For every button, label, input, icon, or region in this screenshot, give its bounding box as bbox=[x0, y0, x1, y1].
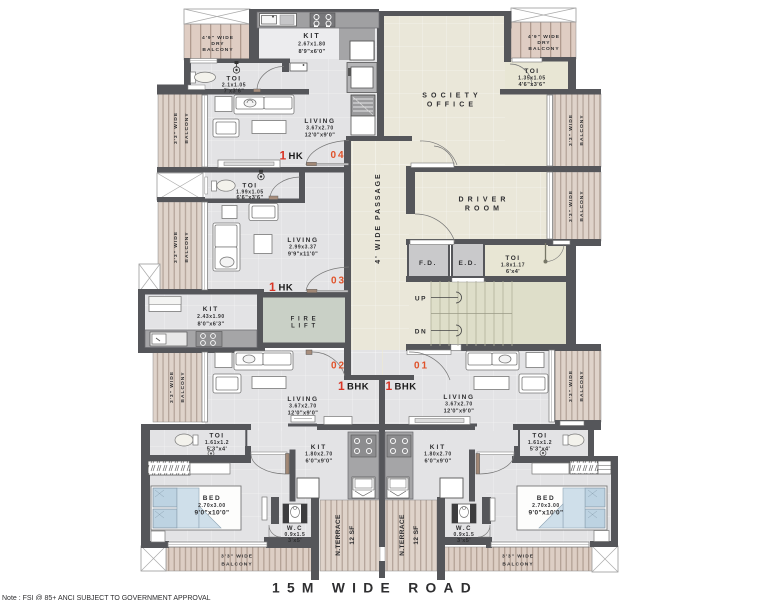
svg-text:BED: BED bbox=[537, 495, 556, 502]
svg-text:Note : FSI @ 85+ ANCI SUBJECT: Note : FSI @ 85+ ANCI SUBJECT TO GOVERNM… bbox=[2, 595, 211, 600]
svg-text:KIT: KIT bbox=[430, 444, 446, 451]
svg-text:UP: UP bbox=[415, 296, 427, 303]
svg-text:1.61x1.2: 1.61x1.2 bbox=[205, 440, 229, 446]
svg-text:12 SF: 12 SF bbox=[413, 525, 420, 544]
svg-text:DRY: DRY bbox=[211, 41, 224, 47]
svg-text:BHK: BHK bbox=[395, 382, 417, 393]
svg-text:LIVING: LIVING bbox=[287, 396, 318, 403]
svg-text:9'0"x10'0": 9'0"x10'0" bbox=[529, 510, 564, 517]
svg-text:5'3"x4': 5'3"x4' bbox=[530, 447, 551, 453]
svg-text:15M WIDE ROAD: 15M WIDE ROAD bbox=[272, 581, 478, 596]
svg-text:3.67x2.70: 3.67x2.70 bbox=[306, 126, 334, 132]
svg-text:KIT: KIT bbox=[303, 33, 320, 40]
svg-text:6'0"x9'0": 6'0"x9'0" bbox=[305, 459, 332, 465]
svg-text:BALCONY: BALCONY bbox=[180, 371, 186, 402]
svg-text:KIT: KIT bbox=[311, 444, 327, 451]
svg-text:4'6"x3'6": 4'6"x3'6" bbox=[518, 82, 545, 88]
svg-text:DN: DN bbox=[415, 329, 428, 336]
svg-text:KIT: KIT bbox=[203, 306, 219, 313]
svg-text:DRY: DRY bbox=[537, 40, 550, 46]
svg-text:N.TERRACE: N.TERRACE bbox=[399, 514, 406, 556]
svg-text:BALCONY: BALCONY bbox=[502, 562, 533, 568]
svg-text:LIFT: LIFT bbox=[291, 324, 319, 330]
svg-text:12'0"x9'0": 12'0"x9'0" bbox=[288, 411, 319, 417]
svg-text:BALCONY: BALCONY bbox=[579, 190, 585, 221]
svg-text:12 SF: 12 SF bbox=[349, 525, 356, 544]
svg-text:3'3" WIDE: 3'3" WIDE bbox=[568, 114, 574, 146]
svg-text:12'0"x9'0": 12'0"x9'0" bbox=[444, 409, 475, 415]
svg-text:1.61x1.2: 1.61x1.2 bbox=[528, 440, 552, 446]
svg-text:E.D.: E.D. bbox=[458, 260, 477, 267]
svg-text:BALCONY: BALCONY bbox=[202, 47, 233, 53]
svg-text:1: 1 bbox=[269, 280, 276, 294]
svg-text:1.35x1.05: 1.35x1.05 bbox=[518, 76, 546, 82]
svg-text:BALCONY: BALCONY bbox=[528, 46, 559, 52]
svg-text:N.TERRACE: N.TERRACE bbox=[335, 514, 342, 556]
svg-text:5'3"x4': 5'3"x4' bbox=[207, 447, 228, 453]
svg-text:DRIVER: DRIVER bbox=[458, 197, 509, 204]
svg-text:3'3" WIDE: 3'3" WIDE bbox=[221, 554, 253, 560]
svg-text:BALCONY: BALCONY bbox=[579, 370, 585, 401]
svg-text:SOCIETY: SOCIETY bbox=[422, 93, 481, 100]
svg-text:3'3" WIDE: 3'3" WIDE bbox=[173, 231, 179, 263]
svg-text:6'6"x3'6": 6'6"x3'6" bbox=[236, 195, 263, 201]
svg-text:FIRE: FIRE bbox=[291, 317, 320, 323]
svg-text:BALCONY: BALCONY bbox=[579, 114, 585, 145]
svg-text:2.70x3.00: 2.70x3.00 bbox=[198, 503, 226, 509]
svg-text:2.70x3.00: 2.70x3.00 bbox=[532, 503, 560, 509]
svg-text:02: 02 bbox=[331, 361, 346, 372]
svg-text:LIVING: LIVING bbox=[443, 394, 474, 401]
svg-text:9'9"x11'0": 9'9"x11'0" bbox=[288, 252, 318, 258]
svg-text:4'9" WIDE: 4'9" WIDE bbox=[528, 34, 560, 40]
svg-text:TOI: TOI bbox=[524, 68, 539, 75]
svg-text:BED: BED bbox=[203, 495, 222, 502]
svg-text:6'x4': 6'x4' bbox=[506, 269, 520, 275]
svg-text:04: 04 bbox=[331, 150, 346, 161]
svg-text:3'3" WIDE: 3'3" WIDE bbox=[169, 371, 175, 403]
svg-text:TOI: TOI bbox=[242, 183, 257, 190]
svg-text:8'9"x6'0": 8'9"x6'0" bbox=[298, 49, 325, 55]
svg-text:2.99x3.37: 2.99x3.37 bbox=[289, 245, 317, 251]
svg-text:3'3" WIDE: 3'3" WIDE bbox=[568, 370, 574, 402]
svg-text:6'0"x9'0": 6'0"x9'0" bbox=[424, 459, 451, 465]
svg-text:BHK: BHK bbox=[347, 382, 369, 393]
svg-text:3'3" WIDE: 3'3" WIDE bbox=[568, 190, 574, 222]
svg-text:3.67x2.70: 3.67x2.70 bbox=[445, 402, 473, 408]
svg-text:TOI: TOI bbox=[505, 255, 520, 262]
svg-text:3'x5': 3'x5' bbox=[288, 538, 302, 544]
svg-text:1: 1 bbox=[280, 149, 287, 163]
svg-text:1: 1 bbox=[386, 379, 393, 393]
svg-text:HK: HK bbox=[279, 282, 294, 293]
svg-text:1.80x2.70: 1.80x2.70 bbox=[305, 452, 333, 458]
svg-text:3.67x2.70: 3.67x2.70 bbox=[289, 404, 317, 410]
svg-text:3'3" WIDE: 3'3" WIDE bbox=[502, 554, 534, 560]
svg-text:F.D.: F.D. bbox=[419, 260, 437, 267]
svg-text:BALCONY: BALCONY bbox=[184, 231, 190, 262]
svg-text:LIVING: LIVING bbox=[287, 237, 318, 244]
svg-text:HK: HK bbox=[289, 151, 304, 162]
svg-text:ROOM: ROOM bbox=[465, 206, 503, 213]
svg-text:01: 01 bbox=[414, 361, 429, 372]
svg-text:3'3" WIDE: 3'3" WIDE bbox=[173, 112, 179, 144]
svg-text:TOI: TOI bbox=[209, 433, 224, 440]
svg-text:4'9" WIDE: 4'9" WIDE bbox=[202, 35, 234, 41]
svg-text:1: 1 bbox=[338, 379, 345, 393]
svg-text:OFFICE: OFFICE bbox=[427, 102, 477, 109]
svg-text:BALCONY: BALCONY bbox=[184, 112, 190, 143]
svg-text:8'0"x6'3": 8'0"x6'3" bbox=[197, 322, 224, 328]
svg-text:3'x5': 3'x5' bbox=[457, 538, 471, 544]
svg-text:9'0"x10'0": 9'0"x10'0" bbox=[195, 510, 230, 517]
svg-text:BALCONY: BALCONY bbox=[221, 562, 252, 568]
svg-text:7'x3'6": 7'x3'6" bbox=[224, 89, 245, 95]
svg-text:4' WIDE PASSAGE: 4' WIDE PASSAGE bbox=[375, 172, 382, 263]
svg-text:2.67x1.80: 2.67x1.80 bbox=[298, 42, 326, 48]
svg-text:12'0"x9'0": 12'0"x9'0" bbox=[305, 133, 336, 139]
svg-text:1.80x2.70: 1.80x2.70 bbox=[424, 452, 452, 458]
svg-text:TOI: TOI bbox=[532, 433, 547, 440]
svg-text:TOI: TOI bbox=[226, 76, 241, 83]
svg-text:2.43x1.90: 2.43x1.90 bbox=[197, 314, 225, 320]
svg-text:1.8x1.17: 1.8x1.17 bbox=[501, 263, 525, 269]
svg-text:03: 03 bbox=[331, 276, 346, 287]
svg-text:LIVING: LIVING bbox=[304, 118, 335, 125]
